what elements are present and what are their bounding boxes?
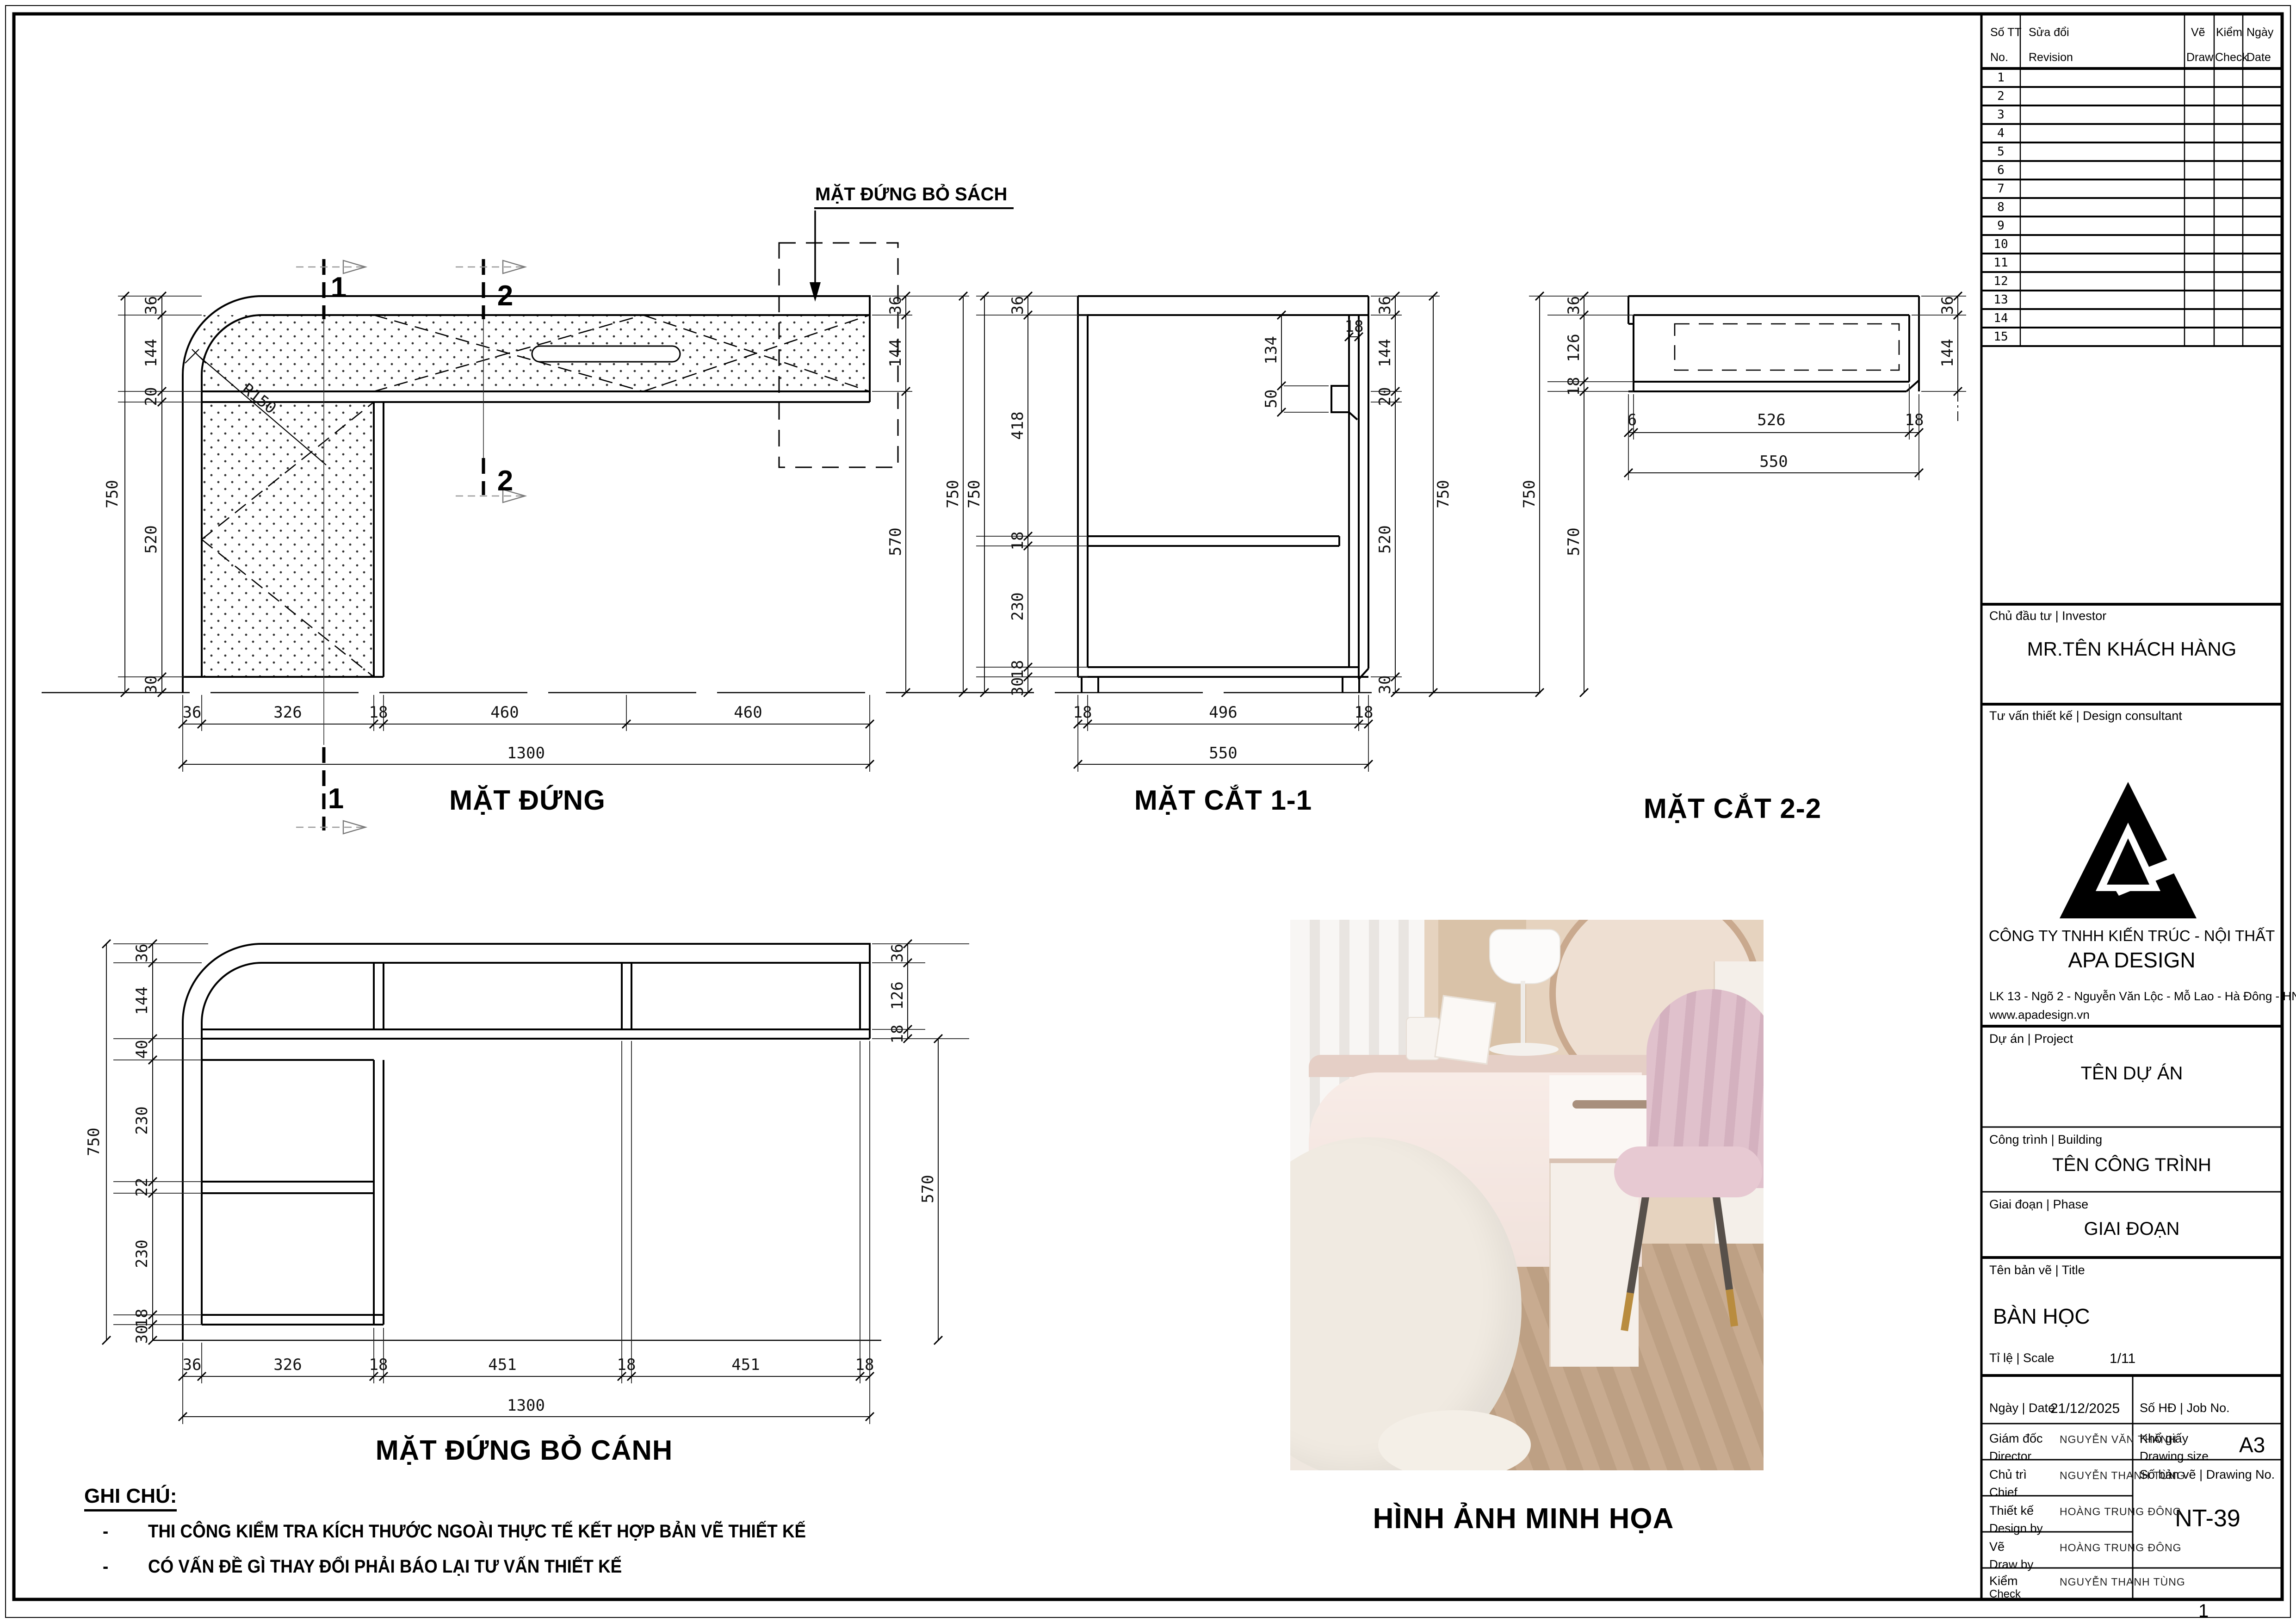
dim-label: 1300 (507, 1398, 545, 1413)
dim-label: 36 (1940, 296, 1956, 315)
dim-label: 36 (183, 705, 202, 720)
design-label: Thiết kế (1989, 1505, 2034, 1517)
dim-label: 496 (1209, 705, 1237, 720)
designer-name: HOÀNG TRUNG ĐÔNG (2060, 1506, 2181, 1517)
sheet-title-value: BÀN HỌC (1993, 1306, 2090, 1327)
dim-label: 460 (734, 705, 762, 720)
hatch-areas (202, 315, 870, 677)
rev-row-number: 12 (1993, 274, 2008, 288)
rev-row-number: 5 (1997, 145, 2005, 159)
dim-label: 326 (273, 705, 302, 720)
dim-label: 126 (890, 981, 905, 1010)
rev-col-no-en: No. (1990, 52, 2008, 63)
dim-label: 750 (966, 480, 982, 508)
dwgno-label: Số bản vẽ | Drawing No. (2140, 1468, 2275, 1481)
dim-label: 144 (1940, 339, 1956, 367)
dim-label: 30 (134, 1325, 150, 1344)
dim-label: 520 (1377, 525, 1393, 553)
rev-col-rev: Sửa đổi (2029, 27, 2069, 38)
dwgno-value: NT-39 (2175, 1506, 2240, 1530)
dim-label: 18 (1355, 705, 1374, 720)
draw-label: Vẽ (1989, 1541, 2005, 1553)
dim-label: 750 (86, 1127, 102, 1156)
notes-heading: GHI CHÚ: (84, 1486, 177, 1511)
dim-label: 36 (1566, 296, 1582, 315)
callout-label: MẶT ĐỨNG BỎ SÁCH (814, 185, 1014, 209)
dim-label: 18 (855, 1357, 874, 1373)
view-title-open: MẶT ĐỨNG BỎ CÁNH (376, 1437, 673, 1464)
dim-label: 20 (143, 387, 159, 406)
view-title-section1: MẶT CẮT 1-1 (1134, 787, 1312, 814)
dim-label: 750 (1436, 480, 1451, 508)
view-title-section2: MẶT CẮT 2-2 (1644, 795, 1821, 823)
paper-label-en: Drawing size (2140, 1450, 2209, 1462)
desk-lower-cabinet (1549, 1163, 1639, 1367)
note-item: THI CÔNG KIỂM TRA KÍCH THƯỚC NGOÀI THỰC … (148, 1522, 806, 1541)
apa-logo-icon (2060, 782, 2197, 918)
dim-label: 18 (617, 1357, 636, 1373)
rev-row-number: 11 (1993, 256, 2008, 270)
rev-col-rev-en: Revision (2029, 52, 2073, 63)
date-label: Ngày | Date (1989, 1402, 2055, 1414)
project-label: Dự án | Project (1989, 1033, 2073, 1045)
dim-label: 550 (1209, 745, 1237, 761)
dim-label: 144 (143, 339, 159, 367)
rev-row-number: 1 (1997, 71, 2005, 85)
dim-label: 18 (1345, 319, 1364, 335)
rev-col-draw-en: Draw (2186, 52, 2213, 63)
checker-name: NGUYỄN THANH TÙNG (2060, 1577, 2185, 1587)
dim-label: 50 (1263, 390, 1279, 409)
job-label: Số HĐ | Job No. (2140, 1402, 2230, 1414)
dim-label: 20 (1377, 387, 1393, 406)
rev-row-number: 14 (1993, 311, 2008, 325)
photo-caption: HÌNH ẢNH MINH HỌA (1373, 1505, 1674, 1533)
dim-label: 418 (1010, 411, 1026, 440)
rev-row-number: 6 (1997, 163, 2005, 177)
section-marker-2: 2 (497, 282, 513, 310)
rev-col-no: Số TT (1990, 27, 2022, 38)
dim-label: 126 (1566, 334, 1582, 362)
lamp-base (1489, 1043, 1559, 1056)
section-marker-2: 2 (497, 467, 513, 496)
section-marker-1: 1 (331, 273, 347, 302)
dim-label: 570 (920, 1175, 936, 1203)
company-website: www.apadesign.vn (1989, 1009, 2090, 1021)
dim-label: 18 (369, 705, 388, 720)
scale-value: 1/11 (2110, 1352, 2135, 1366)
chief-label: Chủ trì (1989, 1468, 2027, 1481)
dim-label: 18 (1905, 412, 1924, 428)
rev-row-number: 2 (1997, 89, 2005, 103)
sheet-title-label: Tên bản vẽ | Title (1989, 1264, 2085, 1276)
rev-row-number: 13 (1993, 293, 2008, 307)
rev-row-number: 3 (1997, 108, 2005, 122)
lamp-shade (1489, 929, 1560, 984)
rev-col-date: Ngày (2246, 27, 2273, 38)
dim-label: 18 (890, 1025, 905, 1044)
dim-label: 460 (490, 705, 519, 720)
dim-label: 30 (143, 675, 159, 694)
rev-row-number: 8 (1997, 200, 2005, 214)
dim-label: 18 (1073, 705, 1092, 720)
dim-label: 36 (890, 944, 905, 963)
rev-row-number: 9 (1997, 219, 2005, 233)
rev-col-draw: Vẽ (2191, 27, 2205, 38)
section2-outline (1628, 296, 1919, 391)
dim-label: 36 (1377, 296, 1393, 315)
lamp-stem (1521, 981, 1525, 1046)
dim-label: 36 (183, 1357, 202, 1373)
dim-label: 520 (143, 525, 159, 553)
dim-label: 144 (134, 986, 150, 1015)
dim-label: 30 (1010, 677, 1026, 696)
phase-value: GIAI ĐOẠN (2084, 1220, 2180, 1238)
dim-label: 526 (1757, 412, 1785, 428)
dim-label: 570 (888, 527, 904, 556)
open-view-outline (183, 944, 870, 1340)
note-bullet: - (103, 1557, 108, 1576)
dim-label: 750 (105, 480, 120, 508)
company-name-line2: APA DESIGN (2068, 949, 2195, 971)
check-label: Kiểm (1989, 1575, 2018, 1587)
paper-size-value: A3 (2239, 1434, 2265, 1456)
dim-label: 18 (1010, 660, 1026, 679)
rev-row-number: 10 (1993, 237, 2008, 251)
photo-frame (1434, 995, 1496, 1065)
project-value: TÊN DỰ ÁN (2081, 1064, 2183, 1083)
dim-label: 550 (1759, 454, 1788, 470)
section1-outline (1078, 296, 1368, 693)
dim-label: 30 (1377, 675, 1393, 694)
date-value: 21/12/2025 (2050, 1402, 2120, 1416)
rev-col-check-en: Check (2215, 52, 2248, 63)
dim-label: 18 (1010, 532, 1026, 551)
rev-col-date-en: Date (2246, 52, 2271, 63)
dim-label: 230 (134, 1239, 150, 1268)
dim-label: 134 (1263, 336, 1279, 364)
chair-seat (1614, 1146, 1762, 1197)
rev-row-number: 7 (1997, 182, 2005, 196)
dim-label: 18 (1566, 377, 1582, 396)
dim-label: 1300 (507, 745, 545, 761)
phase-label: Giai đoạn | Phase (1989, 1198, 2088, 1211)
dim-label: 144 (1377, 339, 1393, 367)
dim-label: 144 (888, 339, 904, 367)
dim-label: 6 (1628, 412, 1637, 428)
section-marker-1: 1 (328, 785, 344, 813)
rev-row-number: 4 (1997, 126, 2005, 140)
illustration-photo (1290, 920, 1764, 1470)
director-label: Giám đốc (1989, 1432, 2043, 1445)
dim-label: 570 (1566, 527, 1582, 556)
view-title-front: MẶT ĐỨNG (449, 787, 606, 814)
dim-label: 750 (1522, 480, 1537, 508)
note-item: CÓ VẤN ĐỀ GÌ THAY ĐỔI PHẢI BÁO LẠI TƯ VẤ… (148, 1557, 622, 1576)
building-label: Công trình | Building (1989, 1134, 2102, 1146)
note-bullet: - (103, 1522, 108, 1541)
dim-label: 451 (731, 1357, 760, 1373)
dim-label: 36 (134, 944, 150, 963)
paper-label: Khổ giấy (2140, 1432, 2188, 1445)
scale-label: Tỉ lệ | Scale (1989, 1352, 2055, 1364)
dim-label: 36 (143, 296, 159, 315)
dim-label: 230 (134, 1106, 150, 1134)
rev-col-check: Kiểm (2216, 27, 2242, 38)
investor-value: MR.TÊN KHÁCH HÀNG (2027, 639, 2237, 659)
dim-label: 40 (134, 1040, 150, 1059)
section2-dashed-books (1675, 324, 1899, 370)
dim-label: 326 (273, 1357, 302, 1373)
rev-row-number: 15 (1993, 330, 2008, 344)
design-label-en: Design by (1989, 1522, 2043, 1534)
page-number: 1 (2198, 1602, 2209, 1620)
dim-label: 230 (1010, 592, 1026, 620)
check-label-en: Check (1989, 1589, 2021, 1600)
draw-label-en: Draw by (1989, 1558, 2033, 1570)
building-value: TÊN CÔNG TRÌNH (2052, 1156, 2211, 1174)
drawing-sheet: { "sheet": { "page_number": "1" }, "revi… (0, 0, 2296, 1623)
company-address: LK 13 - Ngõ 2 - Nguyễn Văn Lộc - Mỗ Lao … (1989, 990, 2296, 1002)
dim-label: 451 (488, 1357, 516, 1373)
consultant-label: Tư vấn thiết kế | Design consultant (1989, 710, 2182, 722)
company-name-line1: CÔNG TY TNHH KIẾN TRÚC - NỘI THẤT (1989, 928, 2275, 943)
investor-label: Chủ đầu tư | Investor (1989, 610, 2106, 622)
dim-label: 36 (1010, 296, 1026, 315)
director-label-en: Director (1989, 1450, 2031, 1462)
chief-label-en: Chief (1989, 1486, 2018, 1498)
dim-label: 36 (888, 296, 904, 315)
dim-label: 18 (369, 1357, 388, 1373)
dim-label: 750 (945, 480, 961, 508)
drawer-name: HOÀNG TRUNG ĐÔNG (2060, 1542, 2181, 1553)
dim-label: 22 (134, 1178, 150, 1197)
